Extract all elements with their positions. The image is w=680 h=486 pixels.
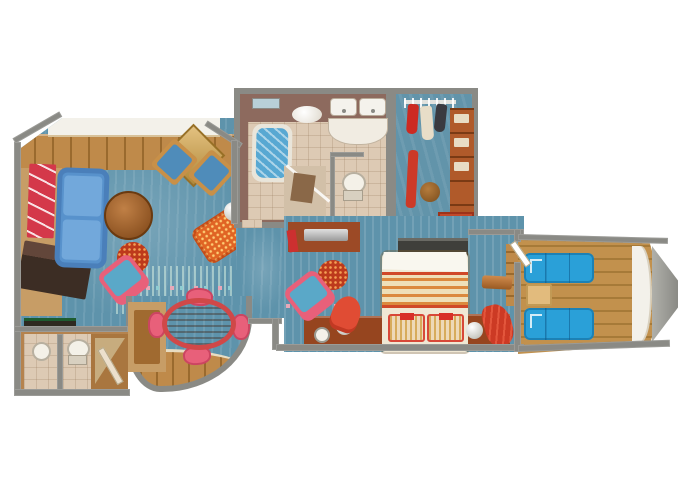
mirror bbox=[304, 229, 348, 241]
bed-spread-pattern bbox=[382, 272, 468, 308]
wall-left bbox=[14, 142, 21, 396]
red-accessory bbox=[287, 229, 299, 252]
bed-fold bbox=[382, 252, 468, 272]
wall-bedroom-bottom bbox=[276, 344, 524, 351]
wall-wc-top bbox=[14, 326, 128, 332]
sofa bbox=[54, 167, 109, 269]
luggage-bench bbox=[482, 275, 513, 290]
sun-lounger bbox=[524, 308, 594, 340]
sphere-lamp bbox=[466, 322, 483, 339]
sink bbox=[330, 98, 357, 116]
alarm-clock bbox=[314, 327, 330, 343]
shelf-item bbox=[454, 138, 469, 147]
sun-lounger bbox=[524, 253, 594, 283]
lounger-mark bbox=[530, 314, 542, 328]
stool bbox=[420, 182, 440, 202]
wall-art bbox=[27, 164, 57, 239]
bathroom-door-gap bbox=[242, 220, 262, 228]
room-bathroom bbox=[234, 88, 392, 228]
ceiling-light bbox=[292, 106, 322, 123]
wall-living-right bbox=[231, 140, 238, 224]
vanity-dresser bbox=[288, 222, 360, 252]
ship-hull-tip bbox=[652, 246, 678, 342]
sofa-cushion bbox=[62, 219, 101, 260]
wall-balcony-divider-lower bbox=[514, 262, 521, 352]
armchair-seat bbox=[288, 274, 329, 313]
room-balcony bbox=[518, 234, 654, 354]
shelf-item bbox=[454, 162, 469, 171]
faucet bbox=[371, 109, 375, 113]
faucet bbox=[342, 109, 346, 113]
sink bbox=[32, 342, 51, 361]
toilet-room-wall bbox=[330, 152, 364, 157]
oval-dining-table bbox=[162, 298, 236, 350]
lounger-mark bbox=[530, 259, 542, 273]
entry-hall-floor bbox=[91, 334, 128, 392]
toilet-tank bbox=[343, 190, 363, 201]
wall-bottom bbox=[14, 389, 130, 396]
pillow-tab bbox=[439, 313, 453, 320]
room-guest-wc bbox=[18, 328, 128, 396]
coffee-table bbox=[104, 191, 153, 240]
garment bbox=[434, 104, 448, 133]
wc-divider-wall bbox=[57, 334, 63, 392]
toilet-room-wall bbox=[330, 152, 335, 220]
sofa-cushion bbox=[63, 175, 102, 216]
pillow bbox=[427, 314, 464, 342]
shower bbox=[284, 166, 326, 220]
shelf-item bbox=[454, 114, 469, 123]
shower-mat bbox=[290, 173, 316, 204]
garment bbox=[420, 106, 434, 141]
room-bedroom bbox=[284, 216, 524, 352]
double-bed bbox=[382, 252, 468, 352]
garment bbox=[406, 104, 419, 135]
pillow bbox=[388, 314, 425, 342]
side-table bbox=[526, 284, 552, 306]
railing bbox=[632, 246, 650, 342]
runner-rug bbox=[405, 150, 418, 208]
pillow-tab bbox=[400, 313, 414, 320]
sink bbox=[359, 98, 386, 116]
bathroom-window bbox=[252, 98, 280, 109]
toilet-tank bbox=[68, 355, 87, 365]
floorplan-canvas bbox=[0, 0, 680, 486]
